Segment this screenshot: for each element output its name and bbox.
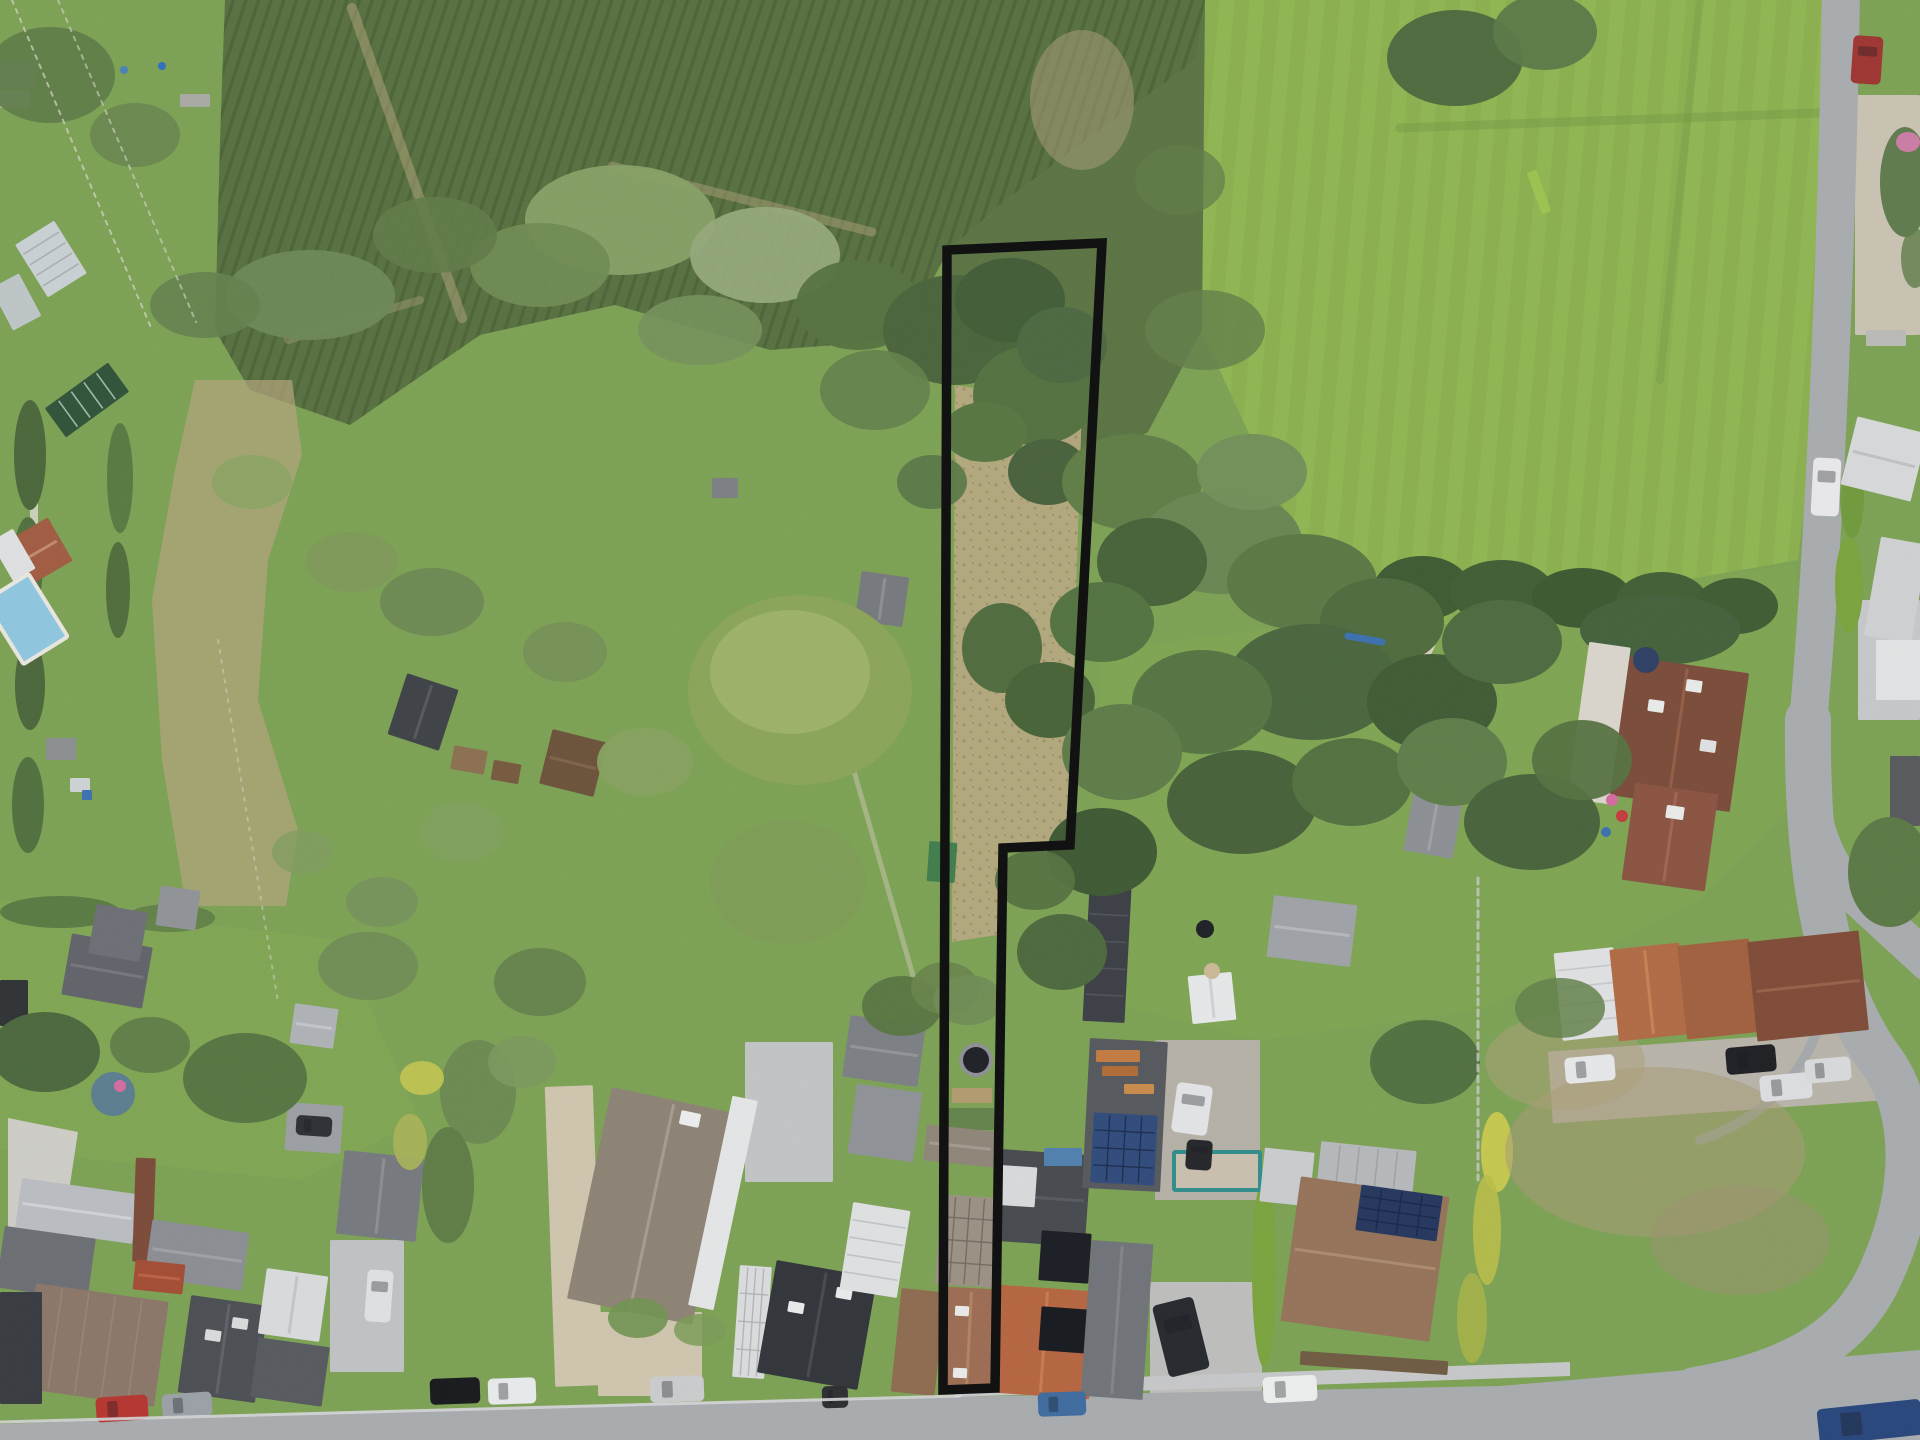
photo-grain	[0, 0, 1920, 1440]
aerial-photo-canvas	[0, 0, 1920, 1440]
aerial-photo	[0, 0, 1920, 1440]
grain	[0, 0, 1920, 1440]
